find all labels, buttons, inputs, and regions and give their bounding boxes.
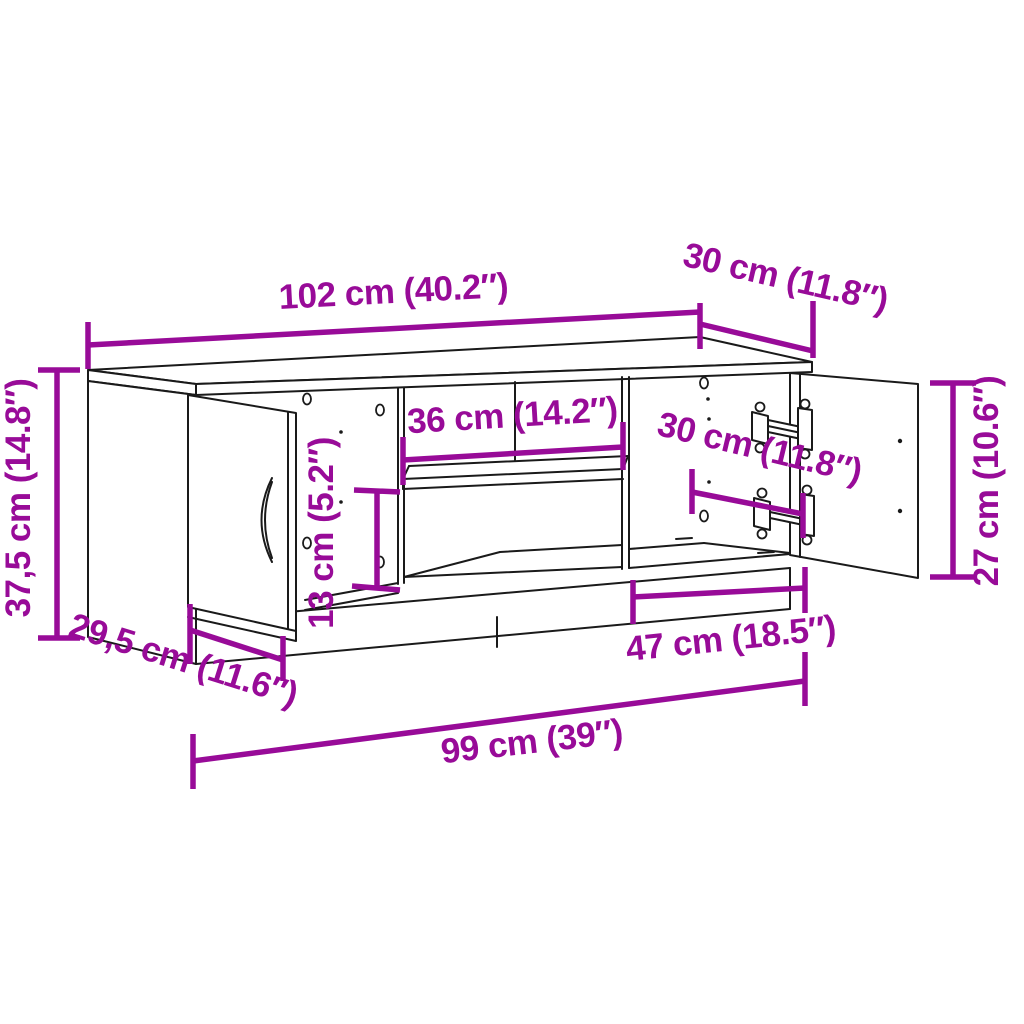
dimension-label-top-width: 102 cm (40.2″) — [278, 266, 509, 317]
dimension-label-top-depth: 30 cm (11.8″) — [680, 235, 892, 320]
dimension-label-left-height: 37,5 cm (14.8″) — [0, 379, 38, 618]
left-door — [188, 395, 296, 641]
dimension-label-right-door-height: 27 cm (10.6″) — [967, 376, 1006, 587]
furniture-diagram: 102 cm (40.2″) 30 cm (11.8″) 37,5 cm (14… — [0, 0, 1024, 1024]
product-dimension-image: 102 cm (40.2″) 30 cm (11.8″) 37,5 cm (14… — [0, 0, 1024, 1024]
dimension-left-height — [38, 370, 80, 638]
dimension-label-bottom-width: 99 cm (39″) — [439, 712, 625, 771]
dimension-label-lower-shelf-height: 13 cm (5.2″) — [302, 437, 341, 629]
